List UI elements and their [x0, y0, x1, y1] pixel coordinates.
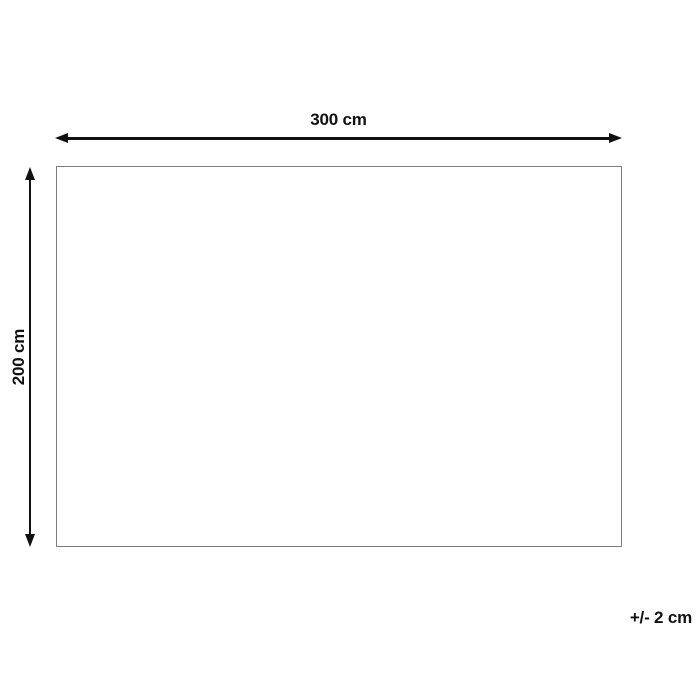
product-dimension-diagram: 300 cm 200 cm +/- 2 cm [0, 0, 700, 700]
width-dimension-line [66, 137, 611, 140]
product-outline-rect [56, 166, 622, 547]
width-dimension-arrow [55, 133, 622, 144]
width-dimension-label: 300 cm [55, 110, 622, 130]
tolerance-label: +/- 2 cm [630, 608, 692, 628]
arrowhead-right-icon [609, 133, 622, 143]
arrowhead-down-icon [25, 534, 35, 547]
height-dimension-arrow [25, 167, 36, 547]
height-dimension-line [29, 178, 32, 536]
